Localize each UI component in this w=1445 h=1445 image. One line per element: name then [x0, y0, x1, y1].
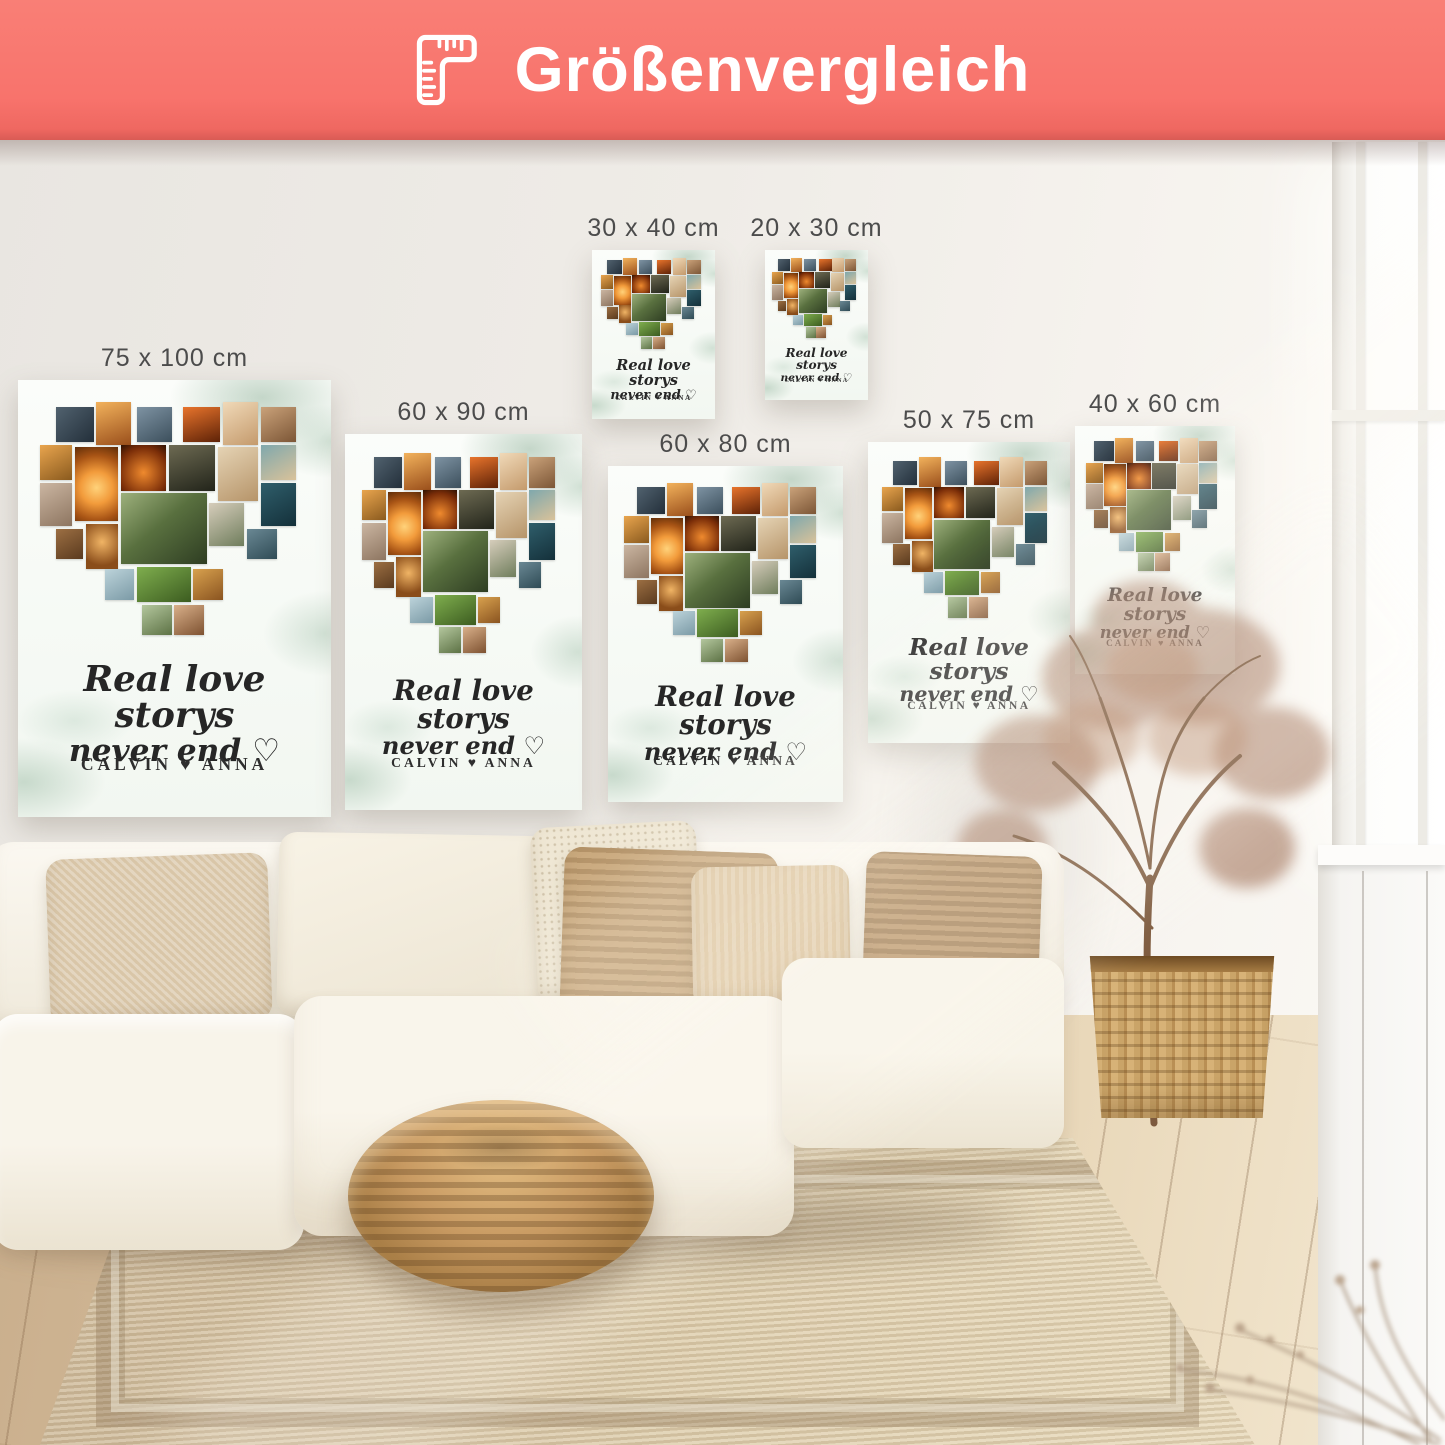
collage-photo: [1025, 461, 1048, 485]
collage-photo: [651, 518, 683, 575]
poster-names: CALVIN ♥ ANNA: [592, 394, 715, 402]
collage-photo: [137, 407, 172, 442]
collage-photo: [762, 483, 788, 516]
collage-photo: [804, 314, 822, 326]
collage-photo: [137, 567, 191, 602]
collage-photo: [661, 323, 673, 335]
size-label: 75 x 100 cm: [101, 344, 248, 373]
collage-photo: [1025, 487, 1048, 511]
poster-canvas-60x90cm: Real love storys never end ♡ CALVIN ♥ AN…: [345, 434, 582, 810]
page-title: Größenvergleich: [515, 34, 1031, 106]
heart-photo-collage: [772, 258, 861, 345]
size-label: 60 x 90 cm: [397, 398, 529, 427]
collage-photo: [1136, 441, 1154, 461]
size-comparison-scene: Größenvergleich 75 x 100 cm Real love st…: [0, 0, 1445, 1445]
poster-canvas-20x30cm: Real love storys never end ♡ CALVIN ♥ AN…: [765, 250, 868, 400]
collage-photo: [121, 493, 207, 564]
collage-photo: [1127, 463, 1150, 489]
wicker-basket: [1086, 956, 1278, 1118]
size-label: 50 x 75 cm: [903, 406, 1035, 435]
collage-photo: [772, 285, 783, 300]
collage-photo: [639, 260, 653, 274]
collage-photo: [667, 483, 693, 516]
collage-photo: [223, 402, 258, 445]
collage-photo: [105, 569, 135, 599]
size-label: 30 x 40 cm: [587, 214, 719, 243]
quote-line-1: Real love storys: [765, 347, 868, 372]
collage-photo: [637, 580, 657, 603]
collage-photo: [1173, 496, 1191, 520]
collage-photo: [142, 605, 172, 635]
collage-photo: [637, 487, 665, 514]
size-label: 20 x 30 cm: [750, 214, 882, 243]
collage-photo: [529, 490, 555, 521]
collage-photo: [845, 272, 857, 284]
collage-photo: [40, 483, 72, 526]
poster-names: CALVIN ♥ ANNA: [18, 754, 331, 775]
collage-photo: [670, 276, 686, 297]
poster-canvas-30x40cm: Real love storys never end ♡ CALVIN ♥ AN…: [592, 250, 715, 419]
collage-photo: [828, 292, 840, 307]
collage-photo: [697, 487, 723, 514]
poster-canvas-75x100cm: Real love storys never end ♡ CALVIN ♥ AN…: [18, 380, 331, 817]
collage-photo: [374, 457, 403, 488]
collage-photo: [912, 541, 933, 572]
size-item-60x90: 60 x 90 cm Real love storys never end ♡ …: [345, 398, 582, 810]
collage-photo: [1000, 457, 1023, 487]
collage-photo: [772, 272, 783, 284]
collage-photo: [388, 492, 421, 555]
size-label: 40 x 60 cm: [1089, 390, 1221, 419]
collage-photo: [463, 627, 485, 653]
size-item-30x40: 30 x 40 cm Real love storys never end ♡ …: [592, 214, 715, 419]
collage-photo: [831, 273, 844, 291]
poster-canvas-60x80cm: Real love storys never end ♡ CALVIN ♥ AN…: [608, 466, 843, 802]
collage-photo: [1192, 510, 1207, 527]
collage-photo: [752, 561, 778, 594]
sofa-seat-cushion: [782, 958, 1064, 1148]
collage-photo: [607, 307, 618, 319]
collage-photo: [974, 461, 998, 485]
collage-photo: [601, 290, 614, 307]
collage-photo: [732, 487, 760, 514]
wicker-pouf: [348, 1100, 654, 1292]
collage-photo: [1199, 441, 1217, 461]
collage-photo: [790, 545, 816, 578]
collage-photo: [659, 576, 683, 611]
size-item-60x80: 60 x 80 cm Real love storys never end ♡ …: [608, 430, 843, 802]
collage-photo: [423, 531, 488, 592]
collage-photo: [1094, 441, 1113, 461]
collage-photo: [667, 298, 681, 315]
collage-photo: [632, 275, 650, 293]
collage-photo: [791, 258, 803, 273]
collage-photo: [261, 483, 296, 526]
quote-line-2: never end ♡: [345, 733, 582, 758]
collage-photo: [519, 562, 541, 588]
collage-photo: [439, 627, 461, 653]
collage-photo: [396, 557, 420, 596]
collage-photo: [496, 492, 527, 538]
heart-photo-collage: [40, 402, 309, 655]
heart-photo-collage: [362, 453, 566, 671]
collage-photo: [905, 488, 933, 539]
collage-photo: [893, 544, 910, 565]
collage-photo: [624, 516, 648, 543]
collage-photo: [75, 447, 118, 521]
collage-photo: [701, 639, 723, 662]
collage-photo: [997, 488, 1023, 525]
collage-photo: [793, 315, 803, 325]
collage-photo: [832, 258, 844, 273]
collage-photo: [934, 487, 964, 518]
collage-photo: [404, 453, 430, 490]
collage-photo: [804, 259, 816, 271]
collage-photo: [247, 529, 277, 559]
poster-names: CALVIN ♥ ANNA: [765, 378, 868, 384]
collage-photo: [687, 290, 701, 307]
collage-photo: [423, 490, 458, 529]
collage-photo: [459, 490, 494, 529]
collage-photo: [790, 487, 816, 514]
ruler-corner-icon: [415, 30, 489, 110]
collage-photo: [410, 597, 432, 623]
collage-photo: [651, 275, 669, 293]
collage-photo: [1110, 507, 1127, 533]
collage-photo: [653, 337, 665, 349]
window-frame-bar: [1418, 142, 1427, 864]
collage-photo: [362, 523, 386, 560]
collage-photo: [56, 407, 94, 442]
size-label: 60 x 80 cm: [659, 430, 791, 459]
poster-quote: Real love storys never end ♡: [608, 683, 843, 765]
collage-photo: [945, 461, 968, 485]
collage-photo: [919, 457, 942, 487]
collage-photo: [261, 407, 296, 442]
poster-quote: Real love storys never end ♡: [345, 677, 582, 759]
collage-photo: [623, 258, 637, 275]
collage-photo: [673, 258, 687, 275]
collage-photo: [1180, 438, 1198, 462]
size-item-20x30: 20 x 30 cm Real love storys never end ♡ …: [765, 214, 868, 400]
collage-photo: [1025, 513, 1048, 543]
collage-photo: [845, 285, 857, 300]
collage-photo: [725, 639, 747, 662]
collage-photo: [86, 524, 118, 570]
collage-photo: [685, 516, 719, 551]
poster-quote: Real love storys never end ♡: [18, 662, 331, 767]
poster-names: CALVIN ♥ ANNA: [345, 755, 582, 771]
collage-photo: [1104, 464, 1126, 506]
collage-photo: [121, 445, 167, 491]
collage-photo: [261, 445, 296, 480]
collage-photo: [529, 457, 555, 488]
collage-photo: [641, 337, 653, 349]
poster-names: CALVIN ♥ ANNA: [608, 753, 843, 769]
collage-photo: [1086, 484, 1103, 508]
collage-photo: [823, 315, 833, 325]
collage-photo: [758, 518, 788, 559]
collage-photo: [673, 611, 695, 634]
collage-photo: [1177, 464, 1198, 494]
quote-line-1: Real love storys: [345, 677, 582, 733]
collage-photo: [614, 276, 631, 304]
throw-pillow: [45, 852, 273, 1028]
collage-photo: [721, 516, 755, 551]
collage-photo: [893, 461, 917, 485]
collage-photo: [740, 611, 762, 634]
collage-photo: [1086, 463, 1103, 483]
heart-photo-collage: [624, 483, 826, 678]
collage-photo: [435, 457, 461, 488]
window-frame-bar: [1332, 410, 1445, 421]
collage-photo: [490, 540, 516, 577]
collage-photo: [1152, 463, 1175, 489]
collage-photo: [687, 275, 701, 289]
collage-photo: [682, 307, 694, 319]
collage-photo: [924, 572, 943, 593]
collage-photo: [183, 407, 221, 442]
collage-photo: [601, 275, 614, 289]
collage-photo: [697, 609, 737, 636]
collage-photo: [657, 260, 672, 274]
size-item-75x100: 75 x 100 cm Real love storys never end ♡…: [18, 344, 331, 817]
collage-photo: [687, 260, 701, 274]
collage-photo: [218, 447, 258, 500]
collage-photo: [882, 513, 903, 543]
collage-photo: [96, 402, 131, 445]
collage-photo: [784, 273, 798, 298]
heart-photo-collage: [601, 258, 707, 356]
collage-photo: [478, 597, 500, 623]
collage-photo: [787, 299, 798, 315]
collage-photo: [799, 272, 814, 288]
collage-photo: [169, 445, 215, 491]
collage-photo: [840, 301, 850, 311]
collage-photo: [624, 545, 648, 578]
header-banner: Größenvergleich: [0, 0, 1445, 140]
collage-photo: [780, 580, 802, 603]
collage-photo: [1094, 510, 1108, 527]
collage-photo: [1115, 438, 1133, 462]
collage-photo: [619, 305, 632, 323]
collage-photo: [435, 595, 476, 626]
collage-photo: [966, 487, 996, 518]
collage-photo: [500, 453, 526, 490]
collage-photo: [1199, 484, 1217, 508]
collage-photo: [639, 322, 660, 336]
quote-line-1: Real love storys: [18, 662, 331, 735]
quote-line-1: Real love storys: [592, 359, 715, 389]
throw-pillow: [276, 832, 551, 1021]
collage-photo: [470, 457, 499, 488]
collage-photo: [819, 259, 831, 271]
collage-photo: [362, 490, 386, 521]
collage-photo: [816, 327, 826, 337]
window: [1332, 142, 1445, 864]
window-frame-bar: [1356, 142, 1365, 864]
collage-photo: [56, 529, 83, 559]
quote-line-1: Real love storys: [608, 683, 843, 739]
collage-photo: [529, 523, 555, 560]
collage-photo: [607, 260, 622, 274]
collage-photo: [845, 259, 857, 271]
collage-photo: [778, 301, 787, 311]
collage-photo: [799, 289, 827, 313]
collage-photo: [778, 259, 790, 271]
collage-photo: [40, 445, 72, 480]
collage-photo: [1199, 463, 1217, 483]
foreground-twigs: [1120, 1210, 1445, 1445]
collage-photo: [209, 503, 244, 546]
collage-photo: [1159, 441, 1178, 461]
collage-photo: [815, 272, 830, 288]
collage-photo: [790, 516, 816, 543]
collage-photo: [374, 562, 394, 588]
collage-photo: [1127, 490, 1171, 530]
collage-photo: [193, 569, 223, 599]
sofa-seat-cushion: [0, 1014, 304, 1250]
collage-photo: [685, 553, 750, 608]
collage-photo: [632, 294, 666, 321]
collage-photo: [806, 327, 816, 337]
collage-photo: [882, 487, 903, 511]
collage-photo: [626, 323, 638, 335]
collage-photo: [174, 605, 204, 635]
